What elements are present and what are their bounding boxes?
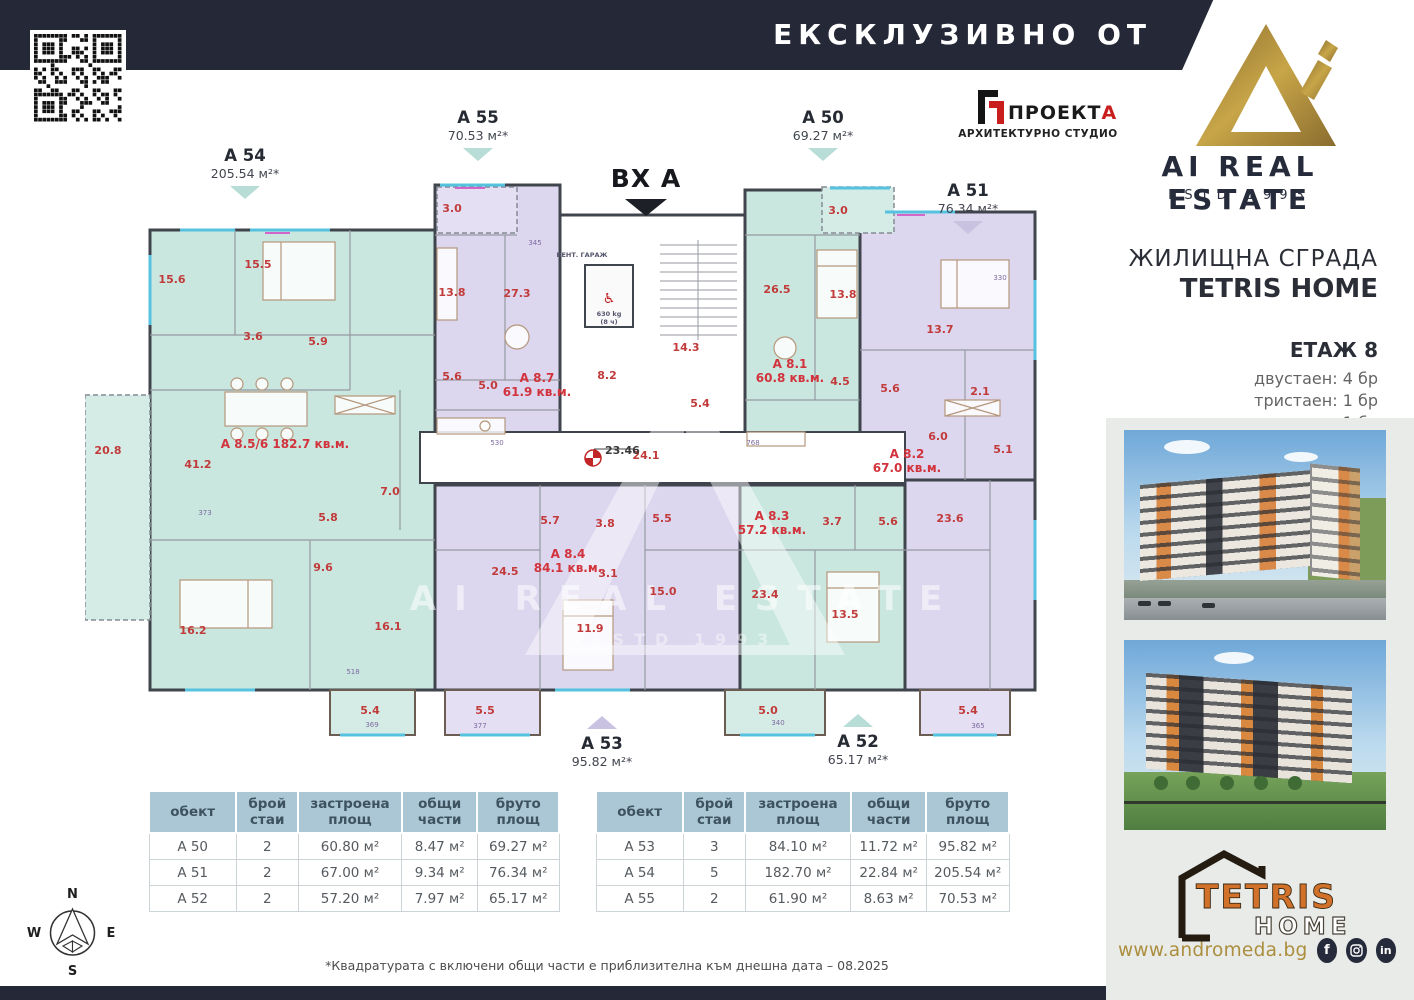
plan-label: 84.1 кв.м. <box>534 561 602 575</box>
plan-label: 16.2 <box>179 624 206 637</box>
compass-w: W <box>27 926 41 941</box>
col-header: обект <box>149 791 236 833</box>
plan-label: 9.6 <box>313 561 333 574</box>
plan-label: 3.0 <box>442 202 462 215</box>
unit-pointer <box>808 148 838 161</box>
logo-word-tetris: TETRIS <box>1196 877 1337 916</box>
compass-rose: N E S W <box>25 884 120 979</box>
table-header-row: обект брой стаи застроена площ общи част… <box>596 791 1009 833</box>
table-cell: 2 <box>236 833 298 860</box>
plan-label: 340 <box>771 719 784 727</box>
unit-marker-a52: A 52 65.17 м²* <box>812 714 904 767</box>
floor-plan: ♿ <box>85 100 1055 770</box>
table-cell: 2 <box>683 886 745 912</box>
svg-text:AI REAL ESTATE: AI REAL ESTATE <box>410 579 960 619</box>
plan-label: 11.9 <box>576 622 603 635</box>
plan-label: 330 <box>993 274 1006 282</box>
plan-label: ВЕНТ. ГАРАЖ <box>557 251 608 259</box>
table-cell: 3 <box>683 833 745 860</box>
unit-marker-a53: A 53 95.82 м²* <box>556 716 648 769</box>
plan-label: 27.3 <box>503 287 530 300</box>
col-header: застроена площ <box>298 791 402 833</box>
table-cell: 76.34 м² <box>477 860 559 886</box>
table-row: A 52257.20 м²7.97 м²65.17 м² <box>149 886 559 912</box>
compass-s: S <box>68 964 77 979</box>
unit-id: A 53 <box>556 734 648 753</box>
col-header: бруто площ <box>477 791 559 833</box>
unit-marker-a55: A 55 70.53 м²* <box>432 108 524 161</box>
plan-label: 768 <box>746 439 759 447</box>
brand-estd: ESTD 1993 <box>1085 188 1395 203</box>
plan-label: 13.8 <box>438 286 465 299</box>
footnote: *Квадратурата с включени общи части е пр… <box>307 958 907 973</box>
plan-label: 5.0 <box>758 704 778 717</box>
plan-label: 5.9 <box>308 335 328 348</box>
plan-label: 5.4 <box>360 704 380 717</box>
plan-label: 23.46 <box>605 444 640 457</box>
unit-id: A 54 <box>199 146 291 165</box>
project-type: ЖИЛИЩНА СГРАДА <box>1048 246 1378 272</box>
table-cell: 2 <box>236 886 298 912</box>
plan-label: 23.6 <box>936 512 963 525</box>
plan-label: 41.2 <box>184 458 211 471</box>
table-cell: A 51 <box>149 860 236 886</box>
unit-marker-a50: A 50 69.27 м²* <box>777 108 869 161</box>
unit-pointer <box>587 716 617 729</box>
table-cell: 182.70 м² <box>745 860 851 886</box>
unit-area: 205.54 м²* <box>199 166 291 181</box>
units-table-right: обект брой стаи застроена площ общи част… <box>595 790 1010 912</box>
plan-label: 3.8 <box>595 517 615 530</box>
unit-area: 65.17 м²* <box>812 752 904 767</box>
table-cell: 57.20 м² <box>298 886 402 912</box>
units-table-left: обект брой стаи застроена площ общи част… <box>148 790 560 912</box>
plan-label: 5.4 <box>690 397 710 410</box>
plan-label: 26.5 <box>763 283 790 296</box>
brand-monogram-icon <box>1188 20 1356 146</box>
compass-e: E <box>107 926 116 941</box>
plan-label: А 8.7 <box>520 371 555 385</box>
table-row: A 55261.90 м²8.63 м²70.53 м² <box>596 886 1009 912</box>
project-info: ЖИЛИЩНА СГРАДА TETRIS HOME ЕТАЖ 8 двуста… <box>1048 246 1378 434</box>
unit-pointer <box>953 221 983 234</box>
table-cell: A 52 <box>149 886 236 912</box>
plan-label: 2.1 <box>970 385 990 398</box>
plan-label: 60.8 кв.м. <box>756 371 824 385</box>
plan-label: 14.3 <box>672 341 699 354</box>
table-cell: A 50 <box>149 833 236 860</box>
table-header-row: обект брой стаи застроена площ общи част… <box>149 791 559 833</box>
table-cell: 9.34 м² <box>402 860 478 886</box>
entrance-marker: ВХ А <box>591 164 701 216</box>
unit-id: A 52 <box>812 732 904 751</box>
entrance-label: ВХ А <box>591 164 701 193</box>
col-header: общи части <box>402 791 478 833</box>
table-row: A 545182.70 м²22.84 м²205.54 м² <box>596 860 1009 886</box>
table-cell: 67.00 м² <box>298 860 402 886</box>
plan-label: 518 <box>346 668 359 676</box>
unit-area: 76.34 м²* <box>922 201 1014 216</box>
plan-label: 3.7 <box>822 515 842 528</box>
building-render-1 <box>1124 430 1386 620</box>
plan-label: 373 <box>198 509 211 517</box>
bottom-band <box>0 986 1106 1000</box>
unit-area: 95.82 м²* <box>556 754 648 769</box>
plan-label: 5.0 <box>478 379 498 392</box>
col-header: брой стаи <box>683 791 745 833</box>
table-row: A 51267.00 м²9.34 м²76.34 м² <box>149 860 559 886</box>
plan-label: 5.8 <box>318 511 338 524</box>
plan-label: 5.1 <box>993 443 1013 456</box>
plan-label: 630 kg <box>597 310 622 318</box>
plan-label: 61.9 кв.м. <box>503 385 571 399</box>
table-row: A 53384.10 м²11.72 м²95.82 м² <box>596 833 1009 860</box>
plan-label: 13.8 <box>829 288 856 301</box>
wheelchair-icon: ♿ <box>603 291 616 307</box>
brand-name: AI REAL ESTATE <box>1085 150 1395 216</box>
instagram-icon[interactable] <box>1346 938 1366 963</box>
table-cell: 61.90 м² <box>745 886 851 912</box>
table-cell: 8.63 м² <box>851 886 927 912</box>
plan-label: 13.7 <box>926 323 953 336</box>
footer-links: www.andromeda.bg f in <box>1118 938 1396 963</box>
plan-label: 57.2 кв.м. <box>738 523 806 537</box>
plan-label: 530 <box>490 439 503 447</box>
unit-pointer <box>463 148 493 161</box>
col-header: обект <box>596 791 683 833</box>
plan-label: 5.7 <box>540 514 560 527</box>
facebook-icon[interactable]: f <box>1317 938 1337 963</box>
plan-label: 15.6 <box>158 273 185 286</box>
plan-label: 5.5 <box>652 512 672 525</box>
building-render-2 <box>1124 640 1386 830</box>
plan-label: 24.5 <box>491 565 518 578</box>
table-cell: 95.82 м² <box>926 833 1009 860</box>
unit-marker-a51: A 51 76.34 м²* <box>922 181 1014 234</box>
plan-label: 13.5 <box>831 608 858 621</box>
website-link[interactable]: www.andromeda.bg <box>1118 940 1308 961</box>
linkedin-icon[interactable]: in <box>1376 938 1396 963</box>
col-header: бруто площ <box>926 791 1009 833</box>
plan-label: 20.8 <box>94 444 121 457</box>
table-cell: 22.84 м² <box>851 860 927 886</box>
plan-label: А 8.3 <box>755 509 790 523</box>
plan-label: 23.4 <box>751 588 778 601</box>
plan-label: 5.6 <box>878 515 898 528</box>
col-header: общи части <box>851 791 927 833</box>
exclusive-banner: ЕКСКЛУЗИВНО ОТ <box>773 0 1152 70</box>
svg-text:ESTD 1993: ESTD 1993 <box>592 630 779 649</box>
plan-label: 3.6 <box>243 330 263 343</box>
unit-mix-line: двустаен: 4 бр <box>1048 368 1378 390</box>
unit-id: A 55 <box>432 108 524 127</box>
plan-label: А 8.2 <box>890 447 925 461</box>
unit-id: A 51 <box>922 181 1014 200</box>
table-cell: 5 <box>683 860 745 886</box>
col-header: застроена площ <box>745 791 851 833</box>
plan-label: 5.4 <box>958 704 978 717</box>
unit-area: 70.53 м²* <box>432 128 524 143</box>
floor-label: ЕТАЖ 8 <box>1048 338 1378 362</box>
compass-n: N <box>67 887 78 902</box>
unit-id: A 50 <box>777 108 869 127</box>
table-cell: 8.47 м² <box>402 833 478 860</box>
entrance-arrow-icon <box>625 199 667 216</box>
logo-word-home: HOME <box>1254 914 1351 940</box>
plan-label: 15.0 <box>649 585 676 598</box>
table-cell: 69.27 м² <box>477 833 559 860</box>
plan-label: 6.0 <box>928 430 948 443</box>
plan-label: 4.5 <box>830 375 850 388</box>
table-cell: 7.97 м² <box>402 886 478 912</box>
plan-label: 5.6 <box>442 370 462 383</box>
plan-label: 8.2 <box>597 369 617 382</box>
unit-marker-a54: A 54 205.54 м²* <box>199 146 291 199</box>
unit-pointer <box>230 186 260 199</box>
plan-label: 67.0 кв.м. <box>873 461 941 475</box>
table-cell: 60.80 м² <box>298 833 402 860</box>
plan-label: 345 <box>528 239 541 247</box>
table-cell: A 54 <box>596 860 683 886</box>
unit-mix-line: тристаен: 1 бр <box>1048 390 1378 412</box>
plan-label: 15.5 <box>244 258 271 271</box>
plan-label: А 8.5/6 182.7 кв.м. <box>221 437 349 451</box>
tetris-home-logo: TETRIS HOME <box>1158 846 1402 942</box>
table-cell: 2 <box>236 860 298 886</box>
table-cell: A 55 <box>596 886 683 912</box>
plan-label: 16.1 <box>374 620 401 633</box>
table-cell: 84.10 м² <box>745 833 851 860</box>
project-name: TETRIS HOME <box>1048 274 1378 304</box>
table-cell: 70.53 м² <box>926 886 1009 912</box>
col-header: брой стаи <box>236 791 298 833</box>
plan-label: 365 <box>971 722 984 730</box>
plan-label: А 8.1 <box>773 357 808 371</box>
plan-label: (8 ч) <box>600 318 617 326</box>
plan-label: 369 <box>365 721 378 729</box>
plan-label: А 8.4 <box>551 547 586 561</box>
unit-pointer <box>843 714 873 727</box>
unit-area: 69.27 м²* <box>777 128 869 143</box>
plan-label: 377 <box>473 722 486 730</box>
table-row: A 50260.80 м²8.47 м²69.27 м² <box>149 833 559 860</box>
table-cell: 205.54 м² <box>926 860 1009 886</box>
table-cell: 65.17 м² <box>477 886 559 912</box>
plan-label: 7.0 <box>380 485 400 498</box>
plan-label: 3.0 <box>828 204 848 217</box>
plan-label: 5.6 <box>880 382 900 395</box>
table-cell: 11.72 м² <box>851 833 927 860</box>
plan-label: 5.5 <box>475 704 495 717</box>
table-cell: A 53 <box>596 833 683 860</box>
brochure-page: ЕКСКЛУЗИВНО ОТ AI REAL ESTATE ESTD 1993 … <box>0 0 1414 1000</box>
